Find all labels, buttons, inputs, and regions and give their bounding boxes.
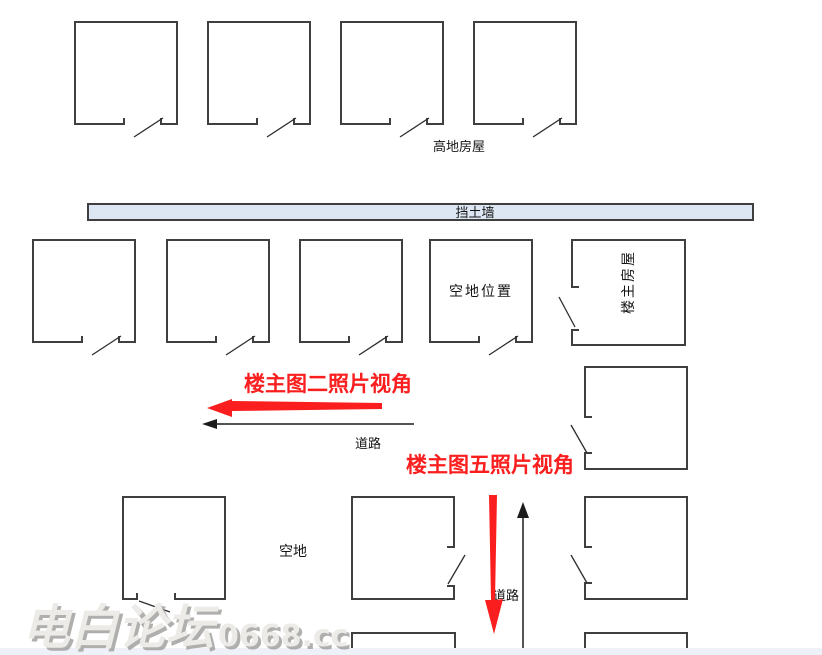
highland-house-2	[208, 22, 310, 137]
empty-lot-position-label: 空地位置	[449, 284, 513, 300]
empty-lot-label: 空地	[279, 544, 307, 560]
partial-house-2	[585, 633, 687, 649]
photo2-view-label: 楼主图二照片视角	[244, 372, 412, 396]
road-arrow-west-head	[202, 419, 217, 429]
photo5-view-arrow	[485, 495, 503, 634]
photo2-view-arrow	[207, 399, 382, 417]
site-plan-diagram: 高地房屋 挡土墙 空地位置 楼主房屋 楼主图二照片视角 道路 楼主图五照片视角 …	[0, 0, 822, 655]
row2-house-1	[33, 240, 135, 355]
row2-house-3	[300, 240, 402, 355]
highland-house-4	[474, 22, 576, 137]
watermark-sitename: 电白论坛	[22, 600, 220, 655]
highland-house-1	[75, 22, 177, 137]
watermark: 电白论坛 电白论坛 0668.cc 0668.cc	[22, 600, 351, 655]
highland-house-3	[341, 22, 443, 137]
watermark-domain: 0668.cc	[218, 619, 348, 654]
retaining-wall-bar	[88, 204, 753, 220]
road-label-horizontal: 道路	[355, 436, 381, 451]
partial-house-1	[352, 633, 455, 649]
row3-house-right	[571, 367, 687, 469]
bottom-house-2	[352, 497, 465, 599]
road-arrow-north-head	[517, 502, 529, 518]
owner-house-label: 楼主房屋	[621, 250, 637, 314]
bottom-house-3	[571, 497, 687, 599]
site-plan-canvas: 高地房屋 挡土墙 空地位置 楼主房屋 楼主图二照片视角 道路 楼主图五照片视角 …	[0, 0, 822, 655]
row2-house-2	[167, 240, 269, 355]
highland-houses-label: 高地房屋	[433, 139, 485, 154]
retaining-wall-label: 挡土墙	[455, 205, 494, 220]
photo5-view-label: 楼主图五照片视角	[406, 453, 574, 477]
bottom-house-1	[123, 497, 225, 612]
